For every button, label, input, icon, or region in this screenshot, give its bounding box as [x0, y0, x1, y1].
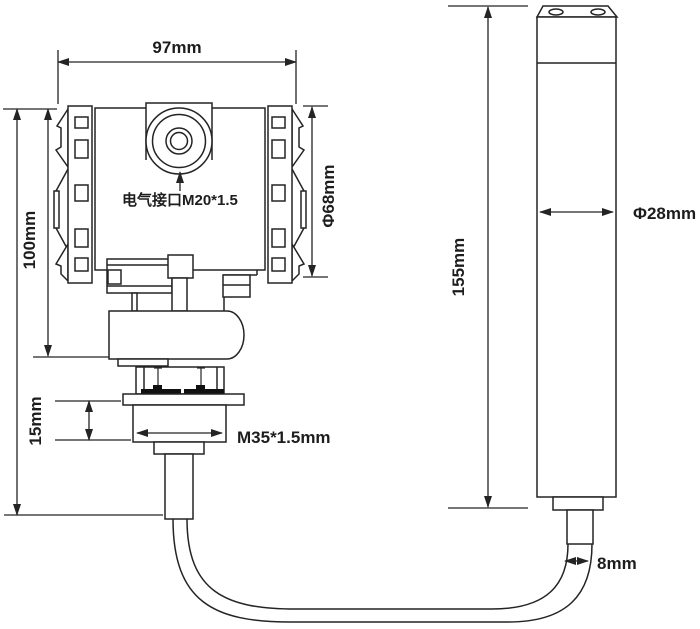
- dimension-thread-height: 15mm: [26, 396, 131, 445]
- probe-step: [553, 497, 603, 510]
- transmitter-drawing: [54, 103, 306, 519]
- label-8mm: 8mm: [597, 554, 637, 573]
- label-100mm: 100mm: [20, 211, 39, 270]
- right-cover: [268, 106, 306, 283]
- label-phi28mm: Φ28mm: [633, 204, 696, 223]
- mounting-bolts: [136, 367, 224, 394]
- technical-diagram-canvas: 97mm 100mm Φ68mm 电气接口M20*1.5: [0, 0, 700, 629]
- label-155mm: 155mm: [449, 238, 468, 297]
- thread-nut: [133, 405, 226, 442]
- label-m35: M35*1.5mm: [237, 428, 331, 447]
- technical-diagram: 97mm 100mm Φ68mm 电气接口M20*1.5: [0, 0, 700, 629]
- label-electrical-interface: 电气接口M20*1.5: [122, 191, 238, 209]
- collar: [154, 442, 204, 454]
- label-phi68mm: Φ68mm: [319, 164, 338, 227]
- connector-circles: [146, 108, 212, 174]
- probe-body: [537, 17, 616, 497]
- probe-stem: [567, 510, 593, 544]
- label-97mm: 97mm: [152, 38, 201, 57]
- flange-plate: [123, 394, 244, 405]
- sensor-body: [109, 311, 244, 359]
- dimension-cover-dia: Φ68mm: [303, 106, 338, 277]
- dimension-probe-length: 155mm: [448, 6, 528, 508]
- dimension-width-97: 97mm: [58, 38, 296, 104]
- label-15mm: 15mm: [26, 396, 45, 445]
- cable-inner-wall: [187, 519, 568, 609]
- left-cover: [54, 106, 92, 283]
- tube: [165, 454, 193, 519]
- probe-drawing: [537, 6, 617, 544]
- cable-outer-wall: [173, 519, 592, 622]
- sensor-body-lip: [118, 359, 168, 366]
- cable: [173, 519, 592, 622]
- dimension-cable-dia: 8mm: [565, 554, 637, 573]
